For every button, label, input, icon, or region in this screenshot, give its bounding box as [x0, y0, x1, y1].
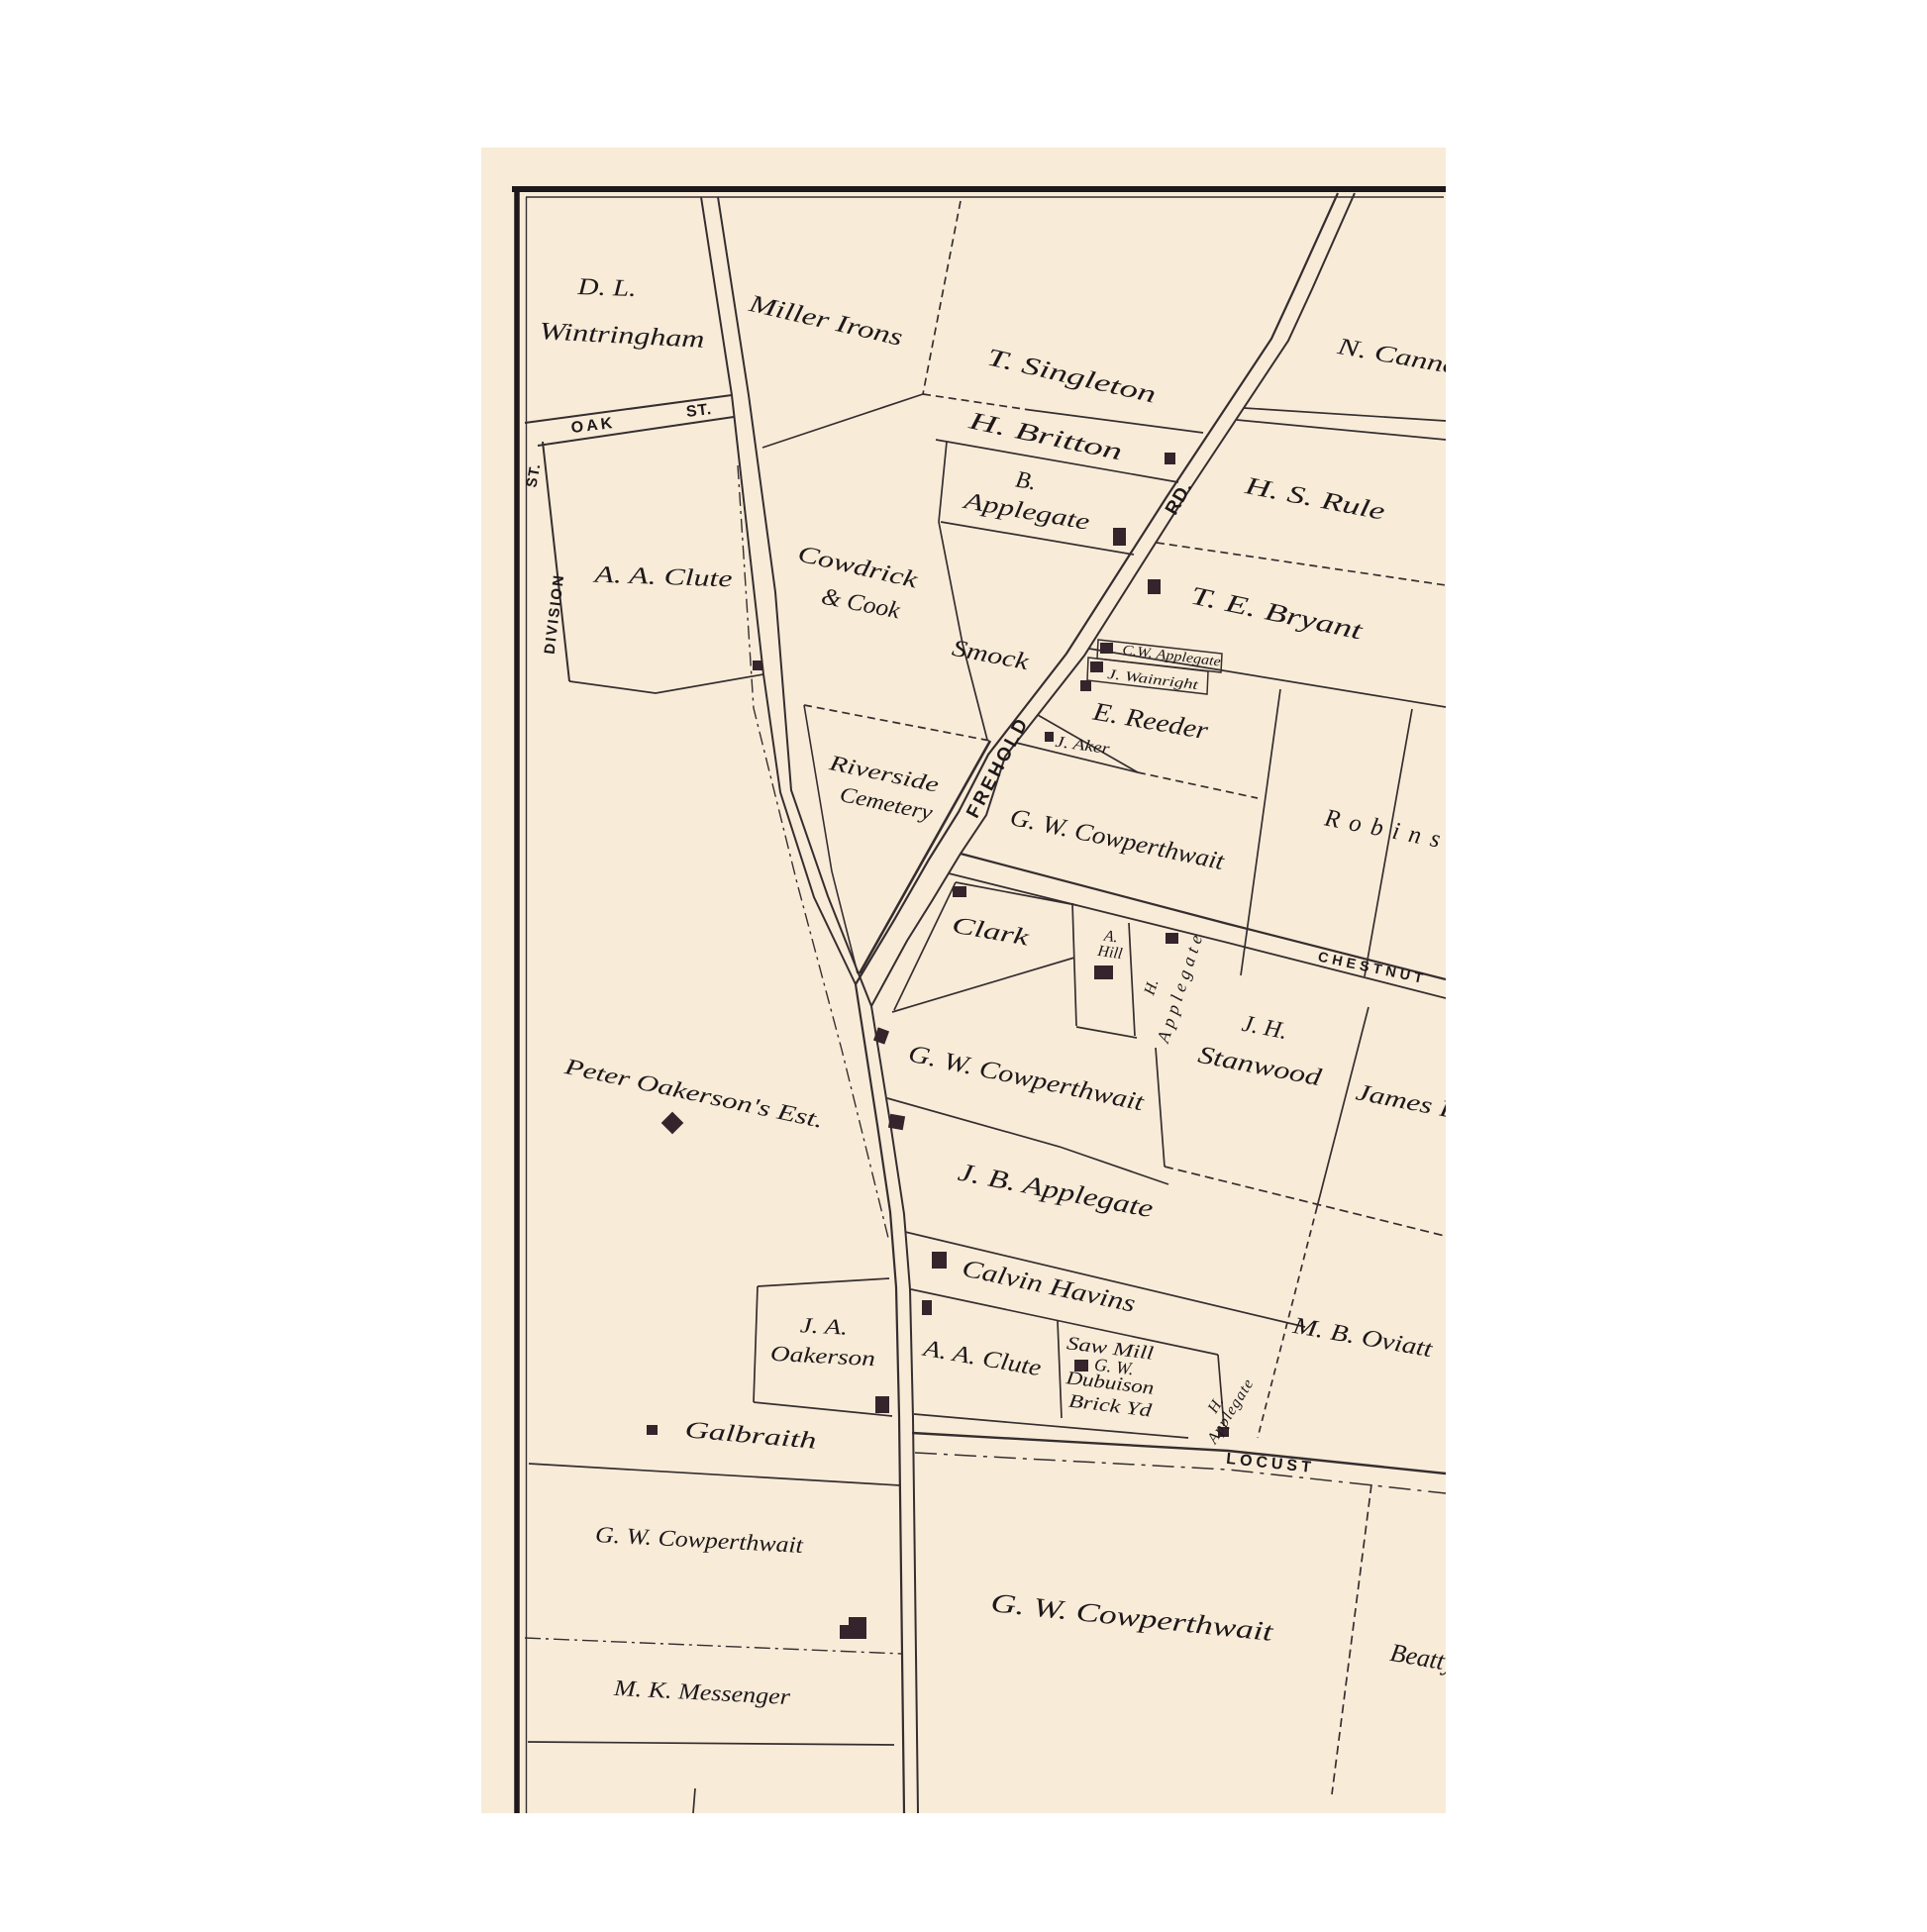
svg-text:ST.: ST.: [685, 401, 713, 421]
svg-text:D. L.: D. L.: [576, 274, 637, 302]
svg-text:J. A.: J. A.: [799, 1312, 848, 1339]
svg-text:A. A. Clute: A. A. Clute: [591, 561, 733, 592]
